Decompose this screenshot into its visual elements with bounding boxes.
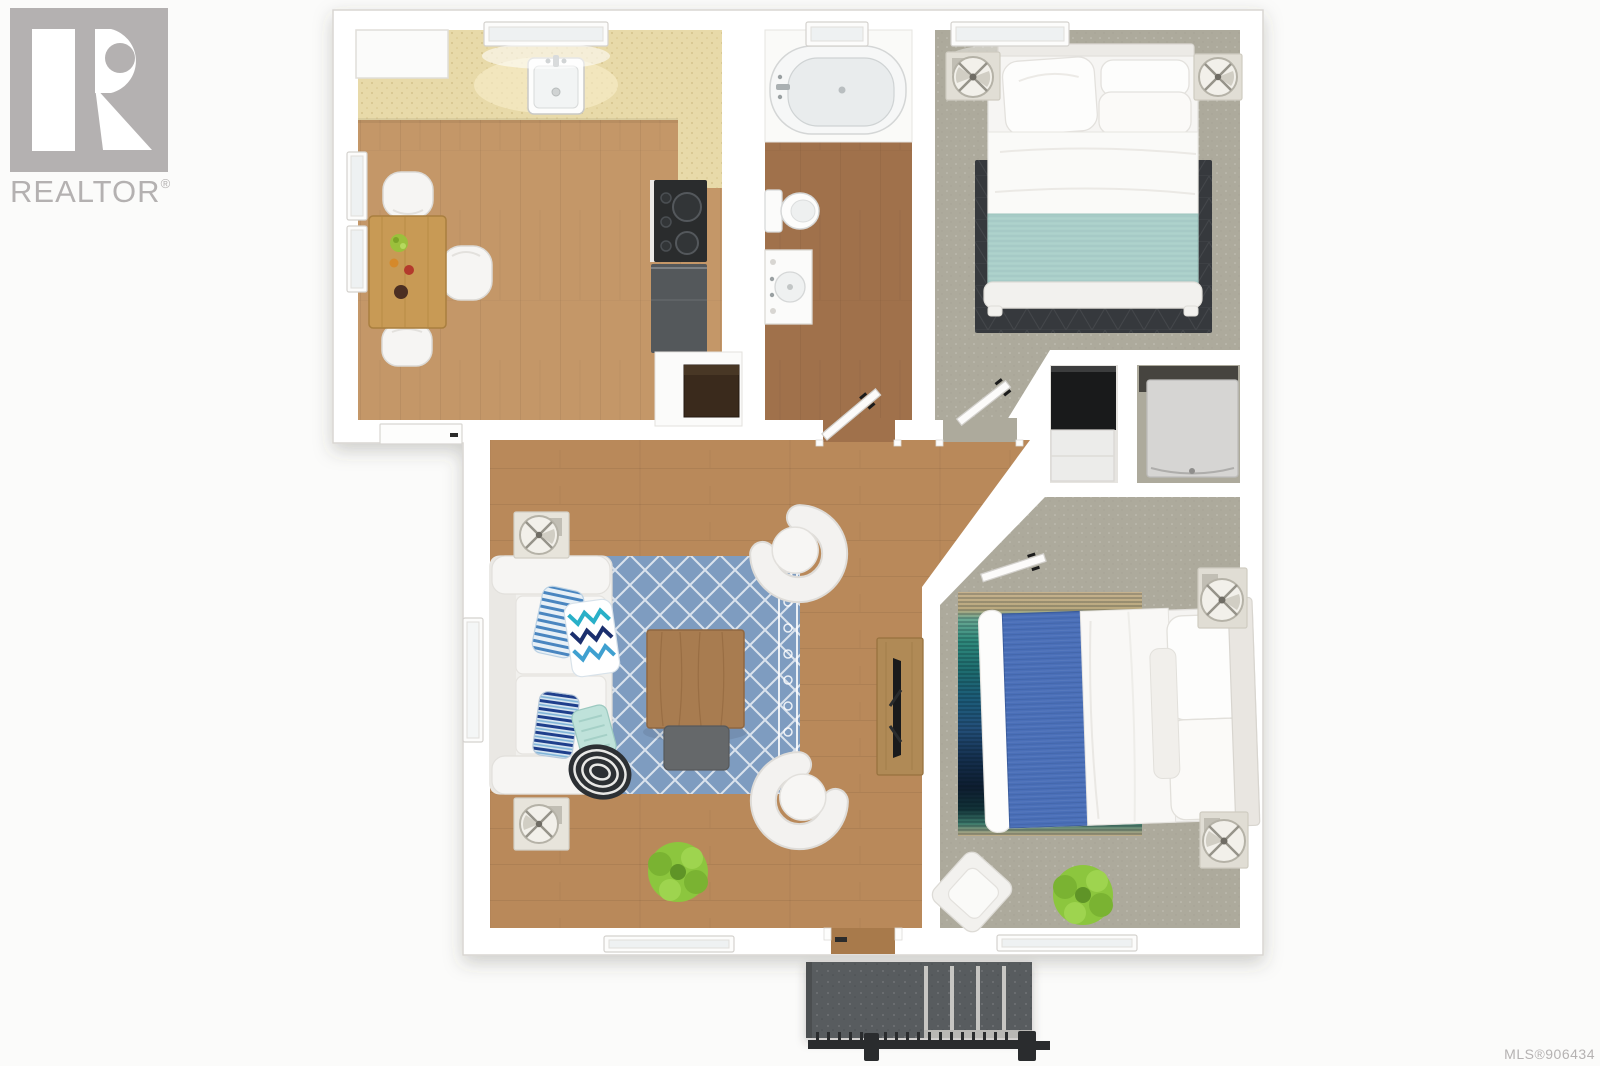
toilet [765, 190, 819, 232]
fruit-bowl [390, 234, 408, 252]
table-fan [520, 805, 558, 843]
bed-footboard [984, 282, 1202, 308]
door-jamb [816, 440, 823, 446]
dining-chair [442, 246, 492, 300]
pillow [1001, 56, 1098, 136]
bathtub [770, 46, 906, 134]
window [347, 226, 367, 292]
appliance-handle [1189, 468, 1195, 474]
dining-table [369, 216, 446, 328]
houseplant [1053, 865, 1113, 925]
bathroom [765, 30, 912, 420]
ottoman [664, 726, 729, 770]
upper-cabinet [356, 30, 448, 78]
door-jamb [895, 928, 902, 940]
table-fan [953, 57, 993, 97]
table-fan [1201, 579, 1243, 621]
burner [661, 193, 671, 203]
coffee-table [647, 630, 744, 728]
houseplant [648, 842, 708, 902]
pillow [1150, 648, 1181, 779]
door-handle [835, 937, 847, 942]
toilet-tank [765, 190, 782, 232]
door-handle [450, 433, 458, 437]
table-fan [1203, 820, 1245, 862]
toiletries [770, 259, 776, 265]
burner [661, 217, 671, 227]
floorplan-render [0, 0, 1600, 1066]
entry-porch [806, 962, 1050, 1061]
newel-post [1018, 1031, 1036, 1061]
bedroom1-doorway [943, 418, 1017, 442]
window [347, 152, 367, 220]
table-fan [1199, 58, 1237, 96]
dining-chair [382, 324, 432, 366]
window [997, 935, 1137, 951]
duvet [988, 132, 1198, 216]
pantry-cabinet [655, 352, 742, 426]
toiletries [770, 308, 776, 314]
burner [676, 232, 698, 254]
kitchen-dining-room [356, 30, 742, 444]
stove [650, 180, 707, 262]
closet-storage-box [1051, 366, 1116, 430]
mls-number: MLS®906434 [1504, 1046, 1595, 1062]
door-jamb [1016, 440, 1023, 446]
newel-post [864, 1033, 879, 1061]
floorplan-image: REALTOR® [0, 0, 1600, 1066]
door-jamb [936, 440, 943, 446]
bedroom2-bed [978, 597, 1260, 834]
door-jamb [894, 440, 901, 446]
burner [661, 241, 671, 251]
pillow [1101, 60, 1189, 96]
bedroom1-bed [984, 44, 1202, 316]
pillow [1099, 92, 1191, 134]
front-door-opening [824, 928, 902, 954]
closet-appliance [1147, 380, 1238, 477]
table-fan [520, 516, 558, 554]
tub-drain [839, 87, 846, 94]
window [806, 22, 868, 46]
window [463, 618, 483, 742]
kitchen-side-door [380, 424, 462, 444]
window [951, 22, 1069, 46]
fruit [404, 265, 414, 275]
bowl [394, 285, 408, 299]
window [484, 22, 608, 46]
closets [1050, 365, 1240, 483]
door-jamb [824, 928, 831, 940]
refrigerator [651, 264, 707, 353]
bathroom-vanity [765, 250, 812, 324]
burner [673, 193, 701, 221]
sink-drain [552, 88, 560, 96]
fruit [390, 259, 399, 268]
dining-chair [383, 172, 433, 218]
window [604, 936, 734, 952]
throw-pillow [563, 598, 621, 678]
tub-faucet [776, 84, 790, 90]
